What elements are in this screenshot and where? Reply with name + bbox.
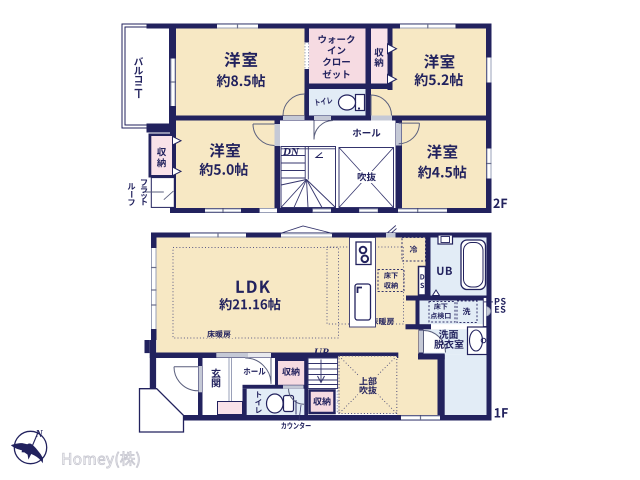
svg-text:UP: UP xyxy=(314,347,329,359)
svg-text:N: N xyxy=(35,429,44,440)
svg-text:DN: DN xyxy=(282,146,300,158)
